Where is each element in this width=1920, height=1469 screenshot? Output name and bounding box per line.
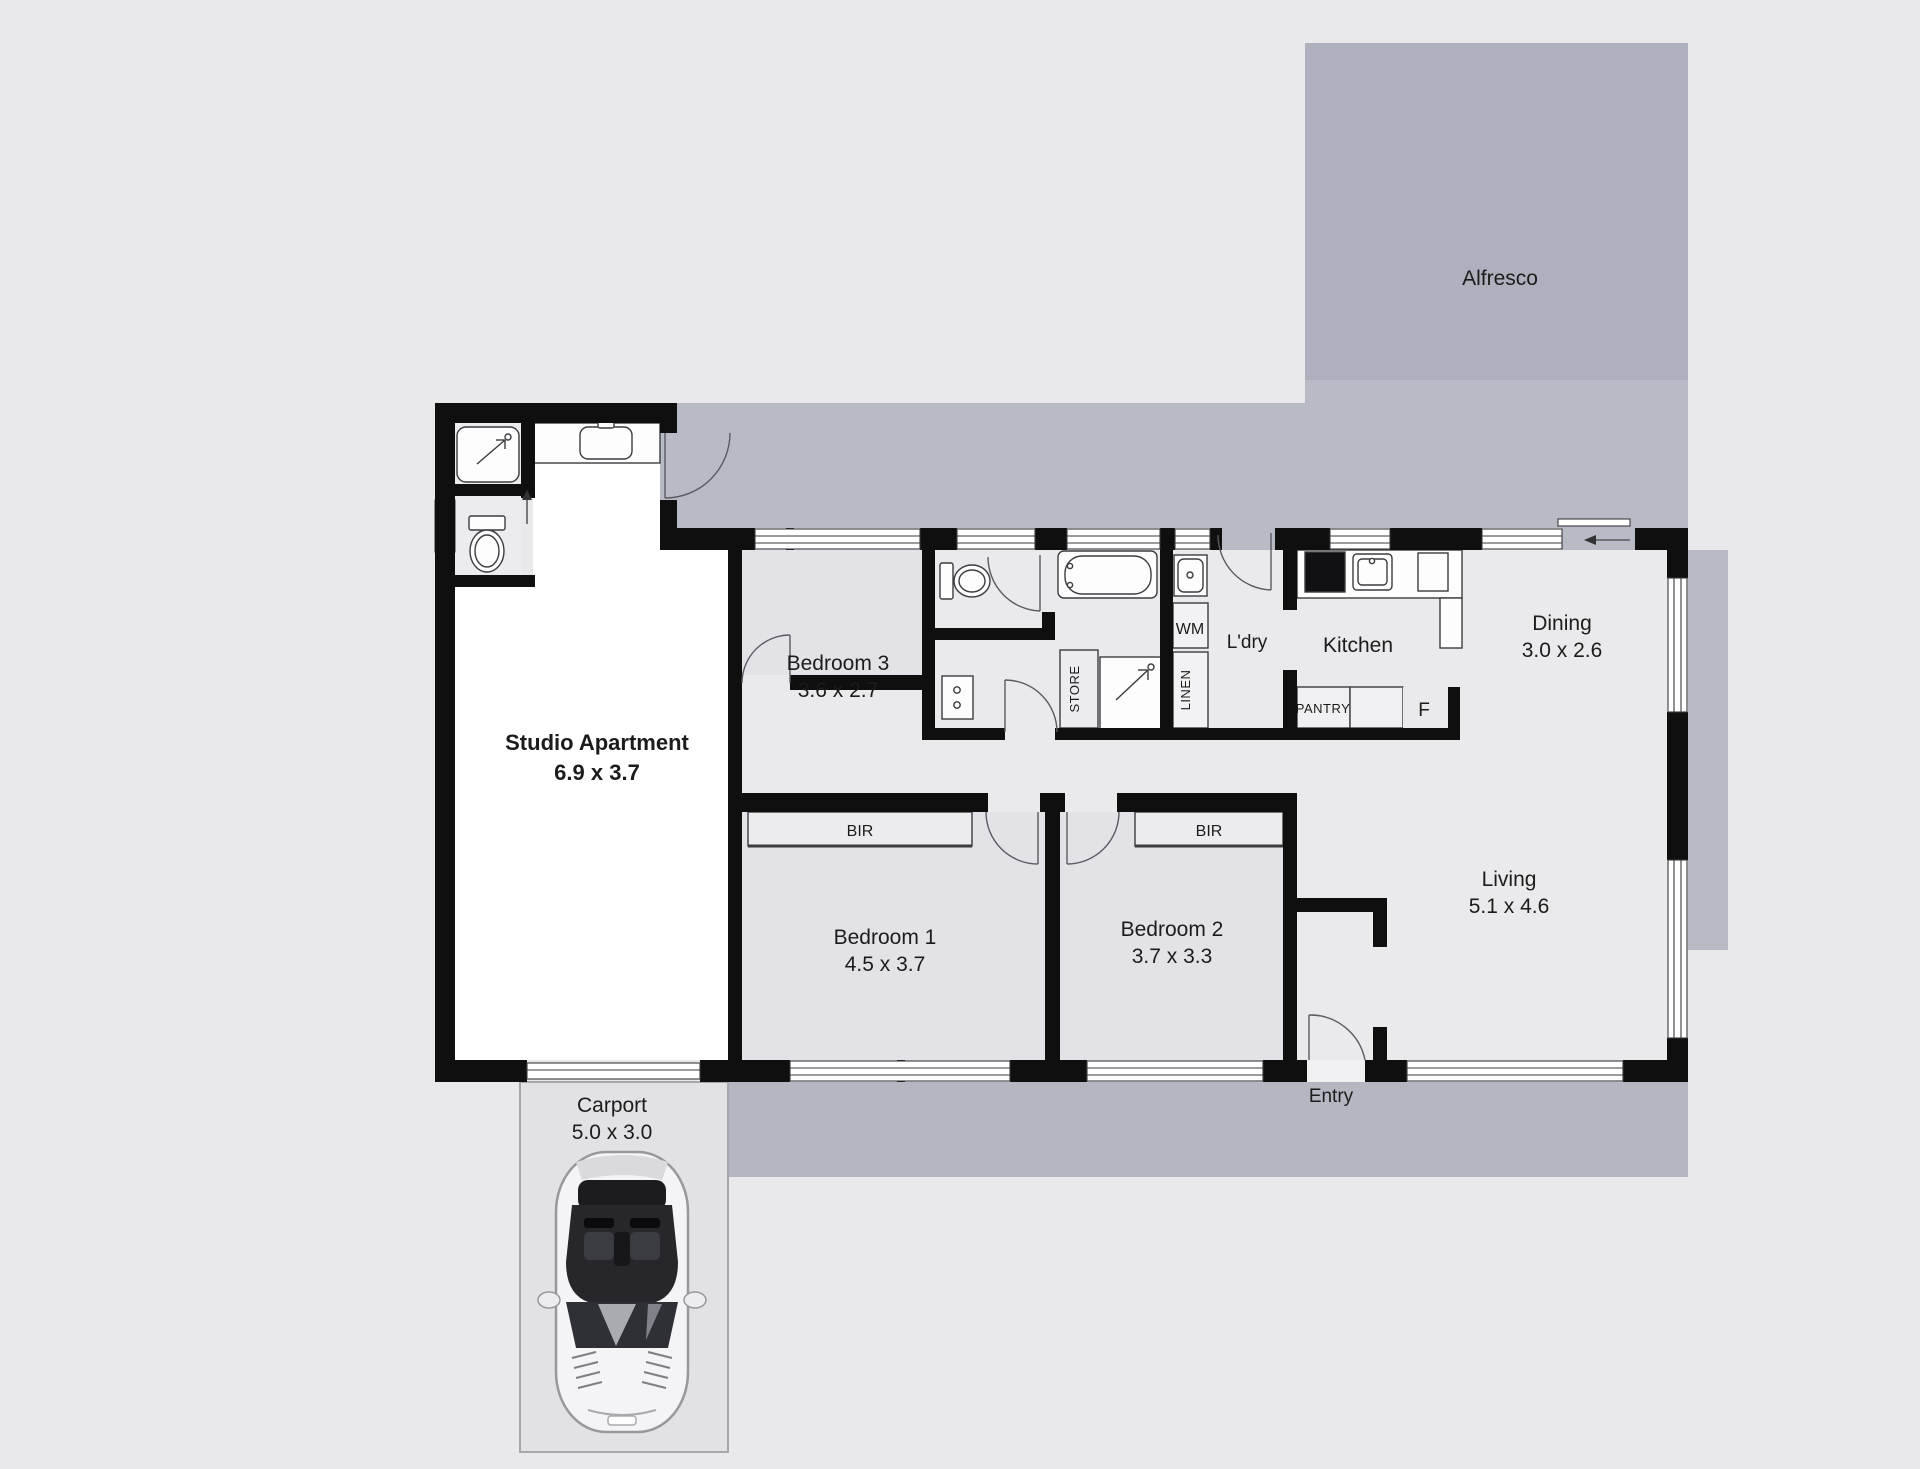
dining-dims: 3.0 x 2.6 bbox=[1522, 639, 1603, 662]
window-bedroom2 bbox=[1087, 1061, 1263, 1081]
bedroom1-label: Bedroom 1 bbox=[834, 926, 937, 949]
fridge-label: F bbox=[1418, 700, 1430, 721]
studio-label: Studio Apartment bbox=[505, 730, 689, 755]
floorplan-drawing: Alfresco Studio Apartment 6.9 x 3.7 Bedr… bbox=[0, 0, 1920, 1469]
laundry-tub-icon bbox=[1174, 555, 1207, 596]
window-bath bbox=[1067, 529, 1160, 549]
pantry-label: PANTRY bbox=[1296, 701, 1351, 716]
window-dining-side bbox=[1668, 578, 1687, 712]
linen-label: LINEN bbox=[1178, 670, 1193, 711]
carport-label: Carport bbox=[577, 1094, 647, 1117]
entry-gap-floor bbox=[1307, 1060, 1365, 1082]
side-path-area bbox=[1688, 550, 1728, 950]
laundry-label: L'dry bbox=[1227, 632, 1268, 653]
bedroom2-dims: 3.7 x 3.3 bbox=[1132, 945, 1213, 968]
dishwasher-box bbox=[1418, 553, 1448, 591]
alfresco-area bbox=[1305, 43, 1688, 380]
bedroom3-label: Bedroom 3 bbox=[787, 652, 890, 675]
window-studio-rear bbox=[527, 1063, 700, 1079]
window-tub bbox=[1175, 529, 1210, 549]
shower-icon bbox=[1100, 657, 1161, 735]
cooktop-icon bbox=[1305, 552, 1345, 592]
window-wc bbox=[957, 529, 1035, 549]
bedroom3-dims: 3.6 x 2.7 bbox=[798, 679, 879, 702]
window-dining-top bbox=[1482, 529, 1562, 549]
kitchen-label: Kitchen bbox=[1323, 634, 1393, 657]
studio-bench bbox=[533, 421, 660, 463]
studio-toilet-icon bbox=[469, 516, 505, 572]
window-kitchen bbox=[1330, 529, 1390, 549]
wm-label: WM bbox=[1176, 621, 1204, 638]
bir1-label: BIR bbox=[847, 823, 874, 840]
studio-dims: 6.9 x 3.7 bbox=[554, 760, 640, 785]
window-living-bottom bbox=[1407, 1061, 1623, 1081]
rear-path-area bbox=[728, 1082, 1688, 1177]
floorplan-page: Alfresco Studio Apartment 6.9 x 3.7 Bedr… bbox=[0, 0, 1920, 1469]
wc-toilet-icon bbox=[940, 563, 990, 599]
bedroom2-label: Bedroom 2 bbox=[1121, 918, 1224, 941]
carport-dims: 5.0 x 3.0 bbox=[572, 1121, 653, 1144]
veranda-area bbox=[677, 380, 1688, 528]
slider-track bbox=[1558, 519, 1630, 526]
living-dims: 5.1 x 4.6 bbox=[1469, 895, 1550, 918]
window-living-side bbox=[1668, 860, 1687, 1038]
studio-sink-icon bbox=[580, 427, 632, 459]
dining-label: Dining bbox=[1532, 612, 1592, 635]
car-icon bbox=[538, 1152, 706, 1432]
window-bedroom3 bbox=[755, 529, 920, 549]
window-bedroom1 bbox=[790, 1061, 1010, 1081]
living-label: Living bbox=[1482, 868, 1537, 891]
bedroom1-dims: 4.5 x 3.7 bbox=[845, 953, 926, 976]
ldry-door-gap bbox=[1222, 528, 1275, 550]
bir2-label: BIR bbox=[1196, 823, 1223, 840]
studio-door-gap bbox=[660, 433, 677, 500]
studio-shower-icon bbox=[457, 427, 519, 482]
entry-label: Entry bbox=[1309, 1086, 1354, 1107]
bath-icon bbox=[1058, 551, 1157, 598]
slider-gap bbox=[1562, 528, 1635, 550]
alfresco-label: Alfresco bbox=[1462, 267, 1538, 290]
kitchen-sink-icon bbox=[1353, 554, 1392, 590]
vanity-icon bbox=[942, 676, 973, 719]
store-label: STORE bbox=[1067, 665, 1082, 712]
